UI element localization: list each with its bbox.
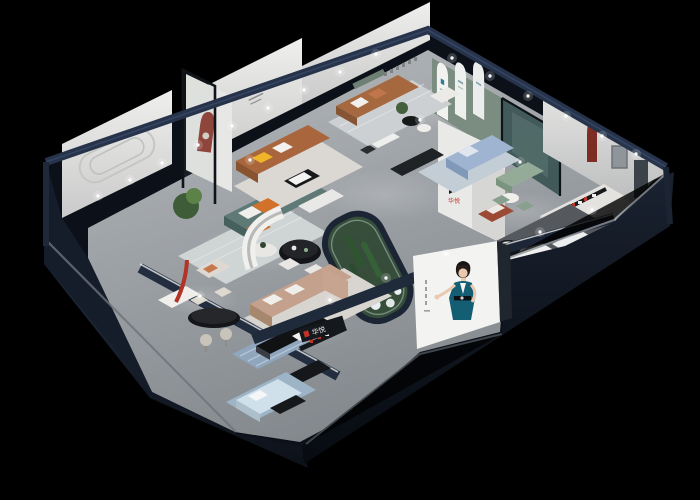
table-plant xyxy=(396,102,408,114)
showroom-render: 华悦 xyxy=(0,0,700,500)
bar-stool xyxy=(200,334,212,346)
isometric-scene: 华悦 xyxy=(0,0,700,500)
east-corner-edge xyxy=(666,167,670,224)
glass-partition-left xyxy=(183,70,215,204)
brand-logo-text: 华悦 xyxy=(448,197,460,205)
wall-art xyxy=(612,146,627,168)
bar-stool xyxy=(220,328,232,340)
